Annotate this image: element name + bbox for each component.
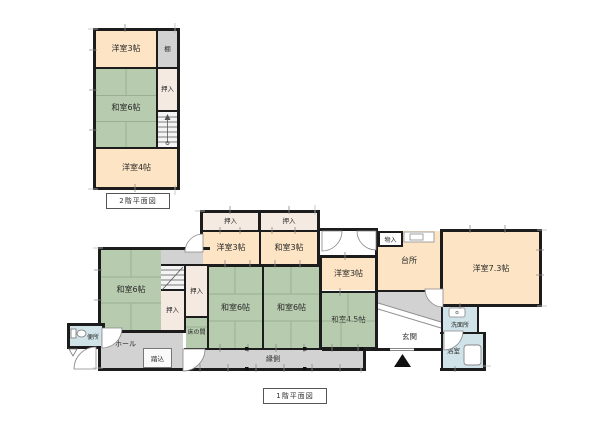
room-label: 物入 <box>384 235 396 244</box>
wall-segment <box>363 348 366 371</box>
room-f1-senmenjo: 洗面所 <box>443 307 477 332</box>
wall-segment <box>183 368 366 371</box>
room-f1-washitsu6-left: 和室6帖 <box>101 250 161 330</box>
door-side-entrance <box>74 347 96 369</box>
room-f1-oshiire-c: 押入 <box>161 291 184 330</box>
room-f1-youshitsu3-top: 洋室3帖 <box>203 232 259 264</box>
room-label: 押入 <box>283 218 296 225</box>
room-f2-youshitsu3: 洋室3帖 <box>96 31 156 67</box>
corridor-strip <box>161 250 203 264</box>
room-f1-washitsu6-c1: 和室6帖 <box>209 267 262 348</box>
room-f1-youshitsu73: 洋室7.3帖 <box>440 229 542 307</box>
room-f2-oshiire: 押入 <box>158 69 177 110</box>
wall-segment <box>96 67 177 69</box>
small-step-marker <box>69 349 77 356</box>
room-label: 洋室3帖 <box>111 45 140 53</box>
wall-segment <box>158 110 177 112</box>
wall-segment <box>322 255 378 258</box>
wall-segment <box>483 332 486 371</box>
wall-segment <box>440 305 480 307</box>
room-label: ホール <box>115 341 136 348</box>
room-label: 和室6帖 <box>111 104 140 112</box>
room-label: 縁側 <box>266 356 280 363</box>
f1-staircase <box>161 266 184 291</box>
room-label: 和室6帖 <box>221 304 250 312</box>
wall-segment <box>259 232 261 264</box>
wall-segment <box>205 348 322 350</box>
room-label: 押入 <box>224 218 237 225</box>
wall-segment <box>98 247 101 333</box>
room-label: 洗面所 <box>451 323 469 329</box>
wall-segment <box>440 332 485 334</box>
floor2-caption: 2階平面図 <box>106 193 170 209</box>
room-label: 床の間 <box>187 330 205 336</box>
room-label: 浴室 <box>447 348 460 355</box>
room-f1-washitsu45: 和室4.5帖 <box>322 293 375 347</box>
room-label: 洋室7.3帖 <box>473 263 510 274</box>
room-f1-engawa: 縁側 <box>183 350 363 368</box>
room-f2-washitsu6: 和室6帖 <box>96 69 156 147</box>
wall-segment <box>477 305 479 334</box>
room-f1-washitsu6-c2: 和室6帖 <box>264 267 319 348</box>
room-label: 棚 <box>164 46 171 53</box>
room-f1-oshiire-d: 押入 <box>186 266 207 316</box>
room-label: 便所 <box>87 332 99 341</box>
door-corridor-left <box>322 231 342 251</box>
room-f2-tana: 棚 <box>158 31 177 67</box>
door-corridor-right <box>357 231 376 250</box>
wall-segment <box>161 289 184 291</box>
room-label: 台所 <box>401 257 417 265</box>
wall-segment <box>98 368 186 371</box>
room-f1-benjo: 便所 <box>67 323 105 349</box>
room-label: 押入 <box>190 288 203 295</box>
entrance-marker-triangle <box>394 354 411 367</box>
room-f1-monoire: 物入 <box>378 231 403 247</box>
wall-segment <box>184 264 186 330</box>
wall-segment <box>322 291 375 293</box>
room-f1-yokushitsu: 浴室 <box>443 334 485 368</box>
room-label: 和室6帖 <box>277 304 306 312</box>
wall-segment <box>156 31 158 147</box>
caption-text: 1階平面図 <box>276 391 313 401</box>
wall-segment <box>186 316 207 318</box>
floor1-caption: 1階平面図 <box>263 388 327 404</box>
room-label: 踏込 <box>151 353 164 363</box>
room-label: 押入 <box>161 86 174 93</box>
caption-text: 2階平面図 <box>119 196 156 206</box>
wall-segment <box>322 347 378 351</box>
room-f1-fumikomi: 踏込 <box>143 348 172 368</box>
wall-segment <box>317 228 378 231</box>
floor-plan-canvas: 洋室3帖 棚 和室6帖 押入 洋室4帖 2階平面図 押入 押入 洋室3帖 和室3… <box>0 0 600 424</box>
room-f1-oshiire-a: 押入 <box>203 213 258 230</box>
room-label: 玄関 <box>402 333 417 341</box>
wall-segment <box>441 305 443 370</box>
room-f2-youshitsu4: 洋室4帖 <box>96 149 177 187</box>
wall-segment <box>96 147 177 149</box>
room-label: 押入 <box>166 307 179 314</box>
wall-segment <box>98 247 210 250</box>
room-label: 洋室3帖 <box>216 244 245 252</box>
room-f1-washitsu3: 和室3帖 <box>261 232 317 264</box>
wall-segment <box>262 264 264 348</box>
room-label: 洋室3帖 <box>334 270 363 278</box>
room-f1-tokonoma: 床の間 <box>186 318 207 348</box>
wall-segment <box>440 368 486 371</box>
room-label: 和室3帖 <box>274 244 303 252</box>
room-f1-youshitsu3-right: 洋室3帖 <box>322 258 375 290</box>
room-f1-oshiire-b: 押入 <box>261 213 317 230</box>
room-label: 和室6帖 <box>116 286 145 294</box>
entrance-door-gap <box>390 348 414 351</box>
room-label: 洋室4帖 <box>122 164 151 172</box>
f2-staircase <box>158 112 177 147</box>
wall-segment <box>258 213 261 230</box>
room-label: 和室4.5帖 <box>331 316 365 324</box>
